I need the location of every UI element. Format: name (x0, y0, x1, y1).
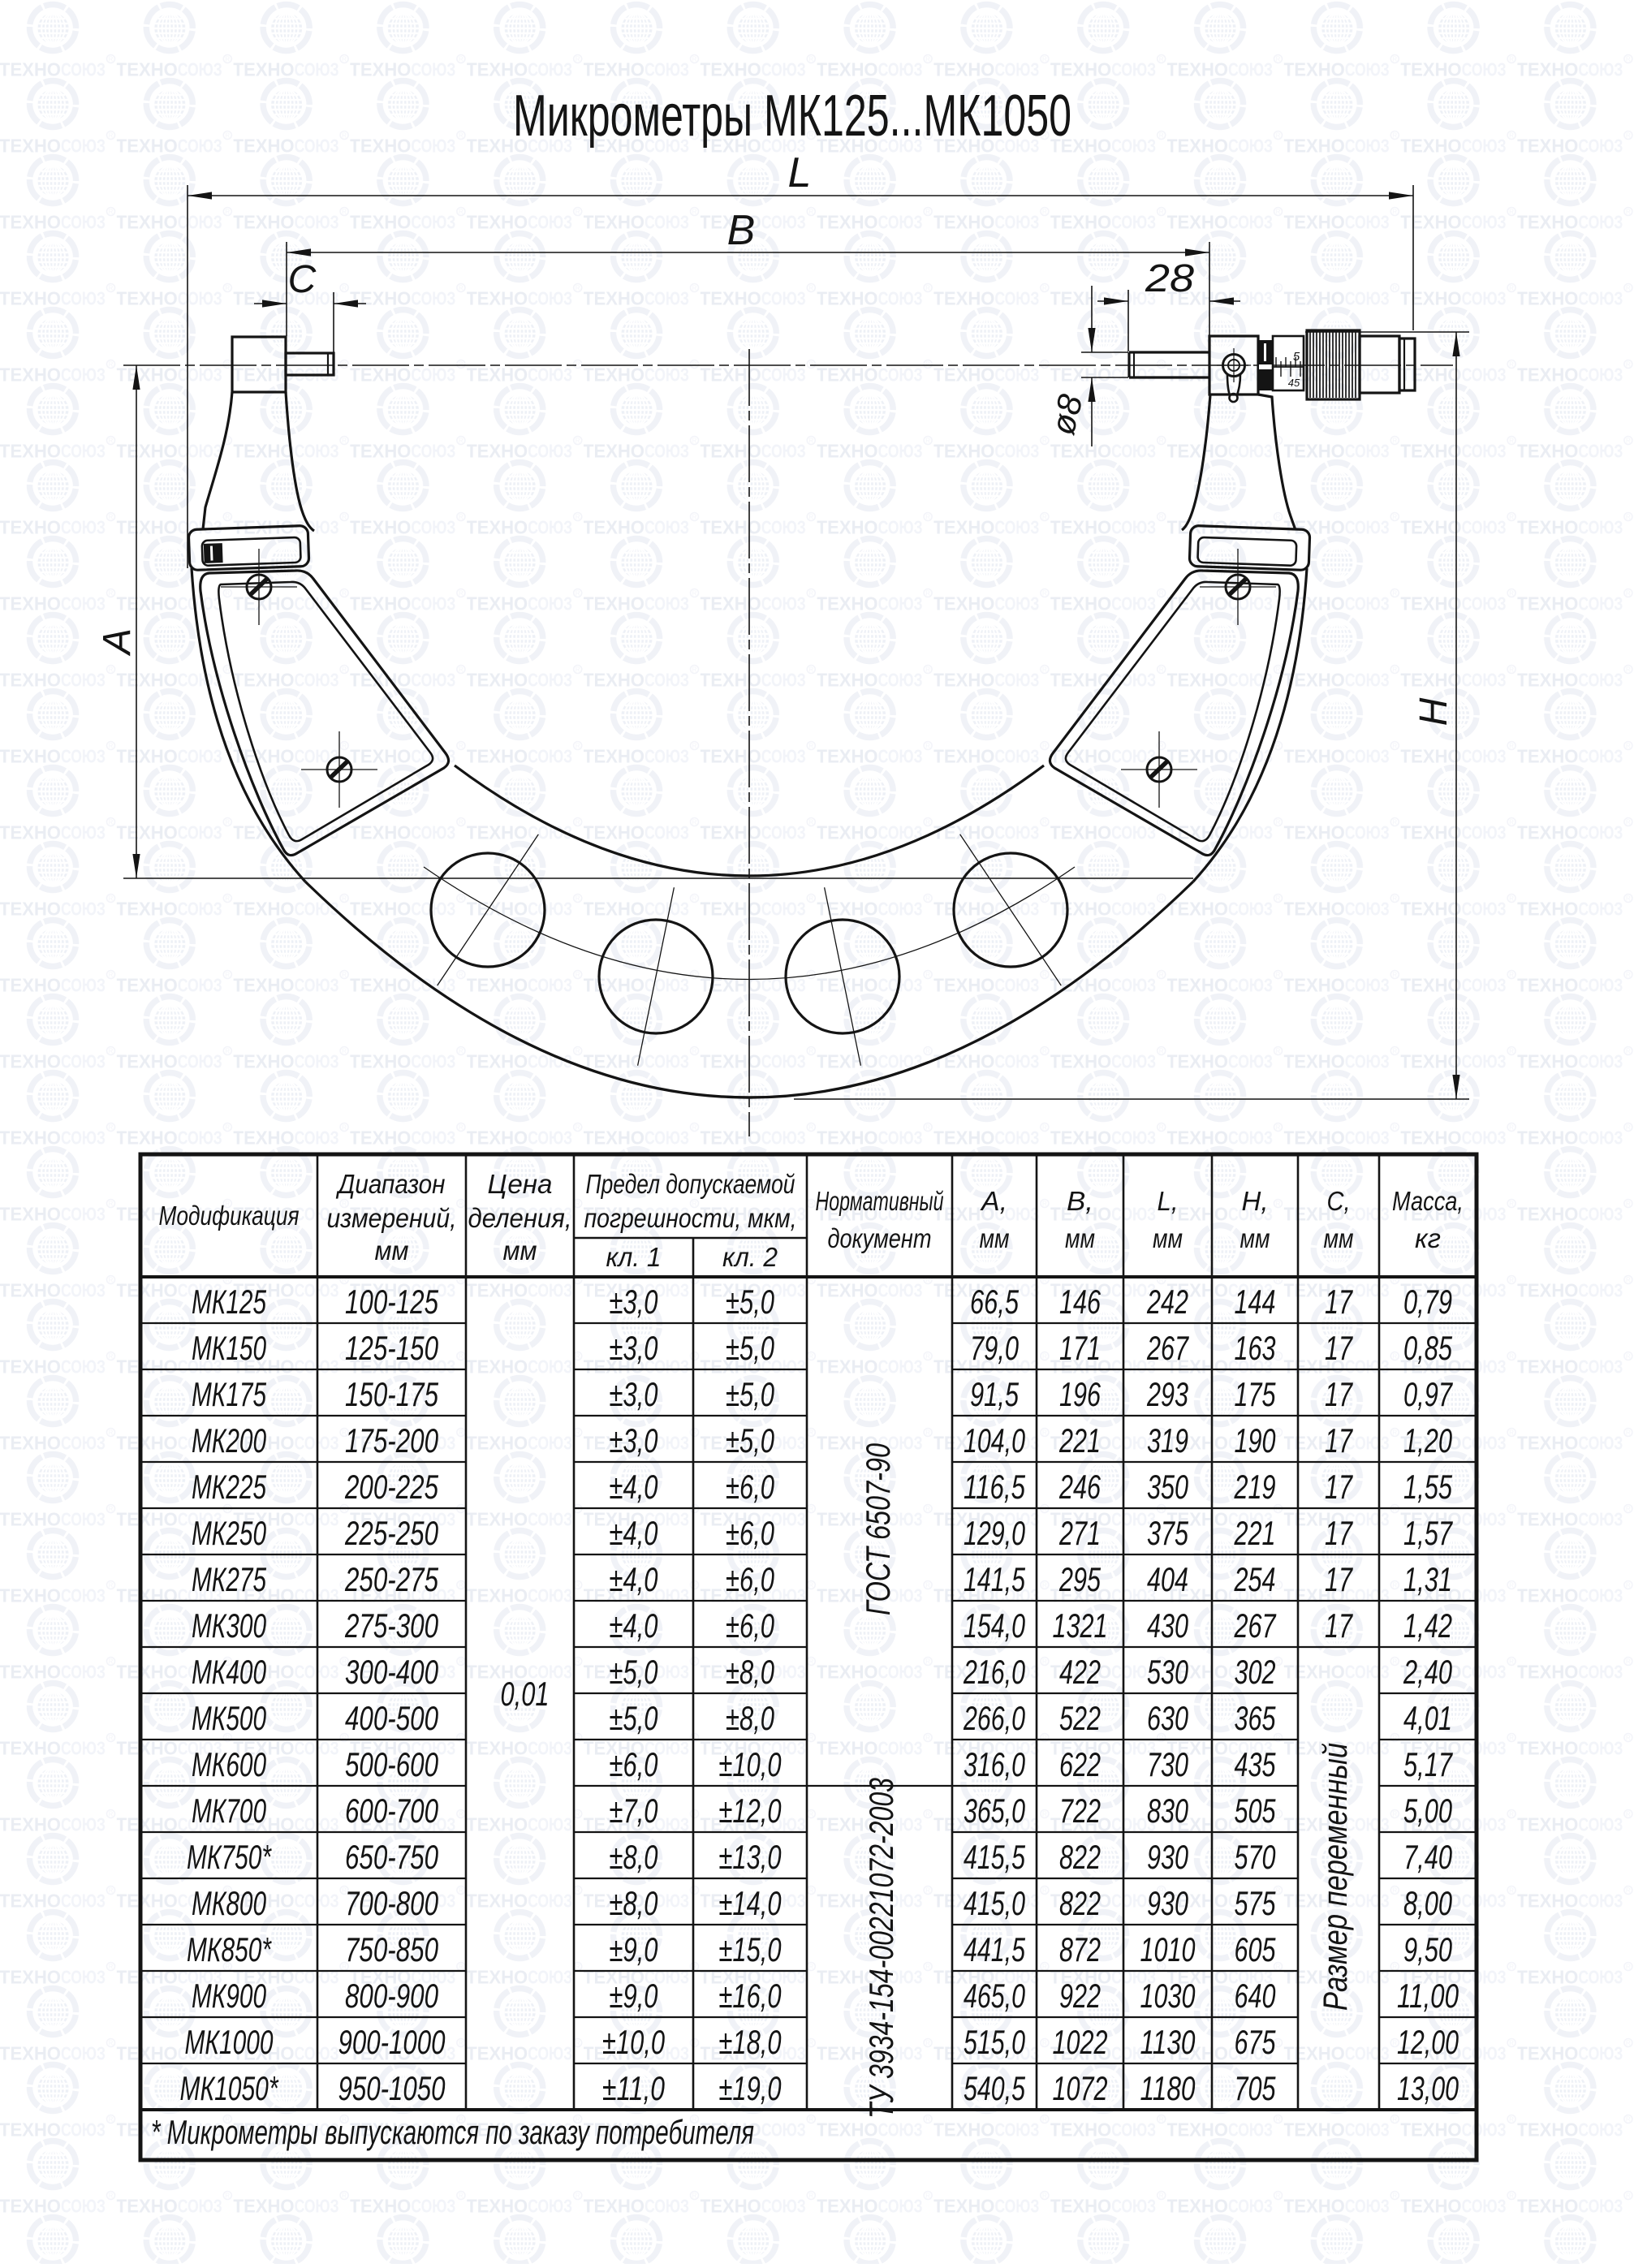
svg-text:±18,0: ±18,0 (719, 2023, 782, 2061)
svg-text:375: 375 (1147, 1514, 1188, 1552)
svg-text:МК600: МК600 (192, 1745, 266, 1783)
svg-text:350: 350 (1147, 1468, 1188, 1506)
svg-text:144: 144 (1235, 1283, 1276, 1321)
svg-text:МК275: МК275 (192, 1560, 266, 1598)
svg-text:В: В (727, 207, 756, 254)
svg-text:±9,0: ±9,0 (610, 1977, 658, 2015)
svg-text:266,0: 266,0 (963, 1699, 1025, 1737)
svg-text:125-150: 125-150 (345, 1329, 438, 1367)
svg-text:погрешности, мкм,: погрешности, мкм, (584, 1204, 797, 1234)
svg-text:600-700: 600-700 (345, 1792, 438, 1830)
svg-text:±6,0: ±6,0 (726, 1468, 774, 1506)
svg-text:МК250: МК250 (192, 1514, 266, 1552)
svg-text:822: 822 (1059, 1838, 1101, 1876)
svg-text:250-275: 250-275 (344, 1560, 438, 1598)
svg-text:1180: 1180 (1140, 2069, 1196, 2107)
svg-text:415,5: 415,5 (964, 1838, 1025, 1876)
svg-text:400-500: 400-500 (345, 1699, 438, 1737)
svg-text:141,5: 141,5 (964, 1560, 1025, 1598)
svg-text:146: 146 (1059, 1283, 1101, 1321)
svg-text:документ: документ (828, 1224, 932, 1254)
svg-text:872: 872 (1059, 1930, 1101, 1968)
svg-text:0,01: 0,01 (501, 1675, 550, 1713)
svg-text:1030: 1030 (1140, 1977, 1196, 2015)
svg-text:0,97: 0,97 (1403, 1375, 1453, 1413)
svg-text:±8,0: ±8,0 (726, 1653, 774, 1691)
svg-text:365,0: 365,0 (964, 1792, 1025, 1830)
svg-text:13,00: 13,00 (1397, 2069, 1459, 2107)
svg-text:±5,0: ±5,0 (610, 1699, 658, 1737)
svg-text:116,5: 116,5 (964, 1468, 1025, 1506)
svg-text:Размер переменный: Размер переменный (1316, 1743, 1354, 2011)
svg-text:мм: мм (1240, 1224, 1270, 1254)
svg-text:МК225: МК225 (192, 1468, 266, 1506)
svg-text:216,0: 216,0 (963, 1653, 1025, 1691)
svg-text:1,20: 1,20 (1403, 1421, 1452, 1460)
svg-text:±5,0: ±5,0 (610, 1653, 658, 1691)
svg-text:465,0: 465,0 (964, 1977, 1025, 2015)
svg-text:246: 246 (1058, 1468, 1101, 1506)
svg-text:ТУ 3934-154-00221072-2003: ТУ 3934-154-00221072-2003 (862, 1778, 900, 2119)
svg-text:±14,0: ±14,0 (719, 1884, 782, 1922)
svg-text:9,50: 9,50 (1403, 1930, 1452, 1968)
svg-text:219: 219 (1234, 1468, 1276, 1506)
svg-text:Микрометры МК125...МК1050: Микрометры МК125...МК1050 (513, 84, 1071, 149)
svg-text:кл. 2: кл. 2 (722, 1243, 778, 1273)
svg-text:±16,0: ±16,0 (719, 1977, 782, 2015)
svg-text:630: 630 (1147, 1699, 1188, 1737)
svg-text:316,0: 316,0 (964, 1745, 1025, 1783)
svg-text:8,00: 8,00 (1403, 1884, 1452, 1922)
svg-text:515,0: 515,0 (964, 2023, 1025, 2061)
svg-text:мм: мм (1065, 1224, 1095, 1254)
svg-text:722: 722 (1059, 1792, 1101, 1830)
svg-text:±4,0: ±4,0 (610, 1606, 658, 1645)
svg-text:196: 196 (1059, 1375, 1101, 1413)
svg-text:930: 930 (1147, 1838, 1188, 1876)
svg-text:675: 675 (1235, 2023, 1276, 2061)
svg-text:МК850*: МК850* (187, 1930, 272, 1968)
svg-text:17: 17 (1325, 1375, 1353, 1413)
svg-text:66,5: 66,5 (970, 1283, 1019, 1321)
svg-text:МК150: МК150 (192, 1329, 266, 1367)
svg-text:МК125: МК125 (192, 1283, 266, 1321)
svg-text:221: 221 (1058, 1421, 1101, 1460)
svg-text:±6,0: ±6,0 (610, 1745, 658, 1783)
svg-text:МК300: МК300 (192, 1606, 266, 1645)
svg-text:254: 254 (1234, 1560, 1276, 1598)
svg-text:В,: В, (1067, 1187, 1093, 1217)
svg-text:±4,0: ±4,0 (610, 1468, 658, 1506)
svg-text:302: 302 (1235, 1653, 1276, 1691)
svg-text:С: С (288, 258, 317, 301)
svg-text:12,00: 12,00 (1397, 2023, 1459, 2061)
svg-text:17: 17 (1325, 1421, 1353, 1460)
svg-text:7,40: 7,40 (1403, 1838, 1452, 1876)
svg-text:730: 730 (1147, 1745, 1188, 1783)
svg-text:441,5: 441,5 (964, 1930, 1025, 1968)
svg-text:измерений,: измерений, (327, 1204, 457, 1234)
svg-text:300-400: 300-400 (345, 1653, 438, 1691)
svg-text:±3,0: ±3,0 (610, 1329, 658, 1367)
svg-text:430: 430 (1147, 1606, 1188, 1645)
svg-text:МК800: МК800 (192, 1884, 266, 1922)
svg-text:570: 570 (1235, 1838, 1276, 1876)
svg-text:Цена: Цена (488, 1170, 553, 1200)
svg-text:5: 5 (1293, 350, 1300, 364)
svg-text:271: 271 (1058, 1514, 1101, 1552)
svg-text:±8,0: ±8,0 (610, 1838, 658, 1876)
svg-text:мм: мм (1153, 1224, 1183, 1254)
svg-text:900-1000: 900-1000 (338, 2023, 446, 2061)
svg-text:0,79: 0,79 (1403, 1283, 1452, 1321)
svg-text:МК500: МК500 (192, 1699, 266, 1737)
svg-text:415,0: 415,0 (964, 1884, 1025, 1922)
svg-text:154,0: 154,0 (964, 1606, 1025, 1645)
svg-text:1130: 1130 (1140, 2023, 1196, 2061)
svg-text:±10,0: ±10,0 (719, 1745, 782, 1783)
svg-text:Н: Н (1412, 697, 1455, 726)
svg-text:267: 267 (1146, 1329, 1189, 1367)
svg-text:мм: мм (1324, 1224, 1354, 1254)
svg-text:±5,0: ±5,0 (726, 1329, 774, 1367)
svg-text:МК200: МК200 (192, 1421, 266, 1460)
svg-text:мм: мм (375, 1236, 409, 1266)
svg-text:±5,0: ±5,0 (726, 1375, 774, 1413)
svg-text:±6,0: ±6,0 (726, 1560, 774, 1598)
svg-text:28: 28 (1145, 257, 1194, 300)
svg-text:±8,0: ±8,0 (726, 1699, 774, 1737)
svg-text:267: 267 (1234, 1606, 1277, 1645)
svg-text:17: 17 (1325, 1468, 1353, 1506)
svg-text:650-750: 650-750 (345, 1838, 438, 1876)
svg-text:±15,0: ±15,0 (719, 1930, 782, 1968)
svg-text:640: 640 (1235, 1977, 1276, 2015)
svg-text:530: 530 (1147, 1653, 1188, 1691)
svg-text:±10,0: ±10,0 (602, 2023, 665, 2061)
svg-text:1010: 1010 (1140, 1930, 1196, 1968)
svg-text:175: 175 (1235, 1375, 1276, 1413)
svg-text:700-800: 700-800 (345, 1884, 438, 1922)
svg-text:129,0: 129,0 (964, 1514, 1025, 1552)
svg-text:190: 190 (1235, 1421, 1276, 1460)
svg-text:0,85: 0,85 (1403, 1329, 1452, 1367)
svg-text:2,40: 2,40 (1403, 1653, 1452, 1691)
svg-text:1022: 1022 (1053, 2023, 1108, 2061)
svg-text:1,55: 1,55 (1403, 1468, 1452, 1506)
svg-text:L,: L, (1158, 1187, 1179, 1217)
svg-text:200-225: 200-225 (344, 1468, 438, 1506)
svg-text:±5,0: ±5,0 (726, 1283, 774, 1321)
svg-text:±6,0: ±6,0 (726, 1606, 774, 1645)
svg-text:11,00: 11,00 (1397, 1977, 1459, 2015)
svg-text:ГОСТ 6507-90: ГОСТ 6507-90 (859, 1443, 897, 1615)
svg-text:422: 422 (1059, 1653, 1101, 1691)
svg-text:Модификация: Модификация (159, 1201, 300, 1231)
svg-text:750-850: 750-850 (345, 1930, 438, 1968)
svg-text:Н,: Н, (1242, 1187, 1269, 1217)
svg-text:17: 17 (1325, 1329, 1353, 1367)
svg-text:деления,: деления, (468, 1204, 572, 1234)
svg-text:±8,0: ±8,0 (610, 1884, 658, 1922)
svg-text:±19,0: ±19,0 (719, 2069, 782, 2107)
svg-text:365: 365 (1235, 1699, 1276, 1737)
svg-text:Масса,: Масса, (1392, 1187, 1464, 1217)
svg-text:17: 17 (1325, 1606, 1353, 1645)
svg-text:91,5: 91,5 (970, 1375, 1019, 1413)
svg-text:171: 171 (1059, 1329, 1101, 1367)
svg-text:А,: А, (980, 1187, 1007, 1217)
svg-text:922: 922 (1059, 1977, 1101, 2015)
svg-text:МК1050*: МК1050* (180, 2069, 279, 2107)
svg-text:100-125: 100-125 (345, 1283, 438, 1321)
svg-text:622: 622 (1059, 1745, 1101, 1783)
svg-text:293: 293 (1146, 1375, 1188, 1413)
svg-text:175-200: 175-200 (345, 1421, 438, 1460)
svg-text:45: 45 (1288, 377, 1300, 389)
svg-text:930: 930 (1147, 1884, 1188, 1922)
svg-text:225-250: 225-250 (344, 1514, 438, 1552)
svg-text:Диапазон: Диапазон (335, 1170, 446, 1200)
svg-text:275-300: 275-300 (344, 1606, 438, 1645)
svg-text:17: 17 (1325, 1560, 1353, 1598)
svg-text:МК400: МК400 (192, 1653, 266, 1691)
svg-text:605: 605 (1235, 1930, 1276, 1968)
svg-text:мм: мм (980, 1224, 1010, 1254)
svg-text:±4,0: ±4,0 (610, 1560, 658, 1598)
svg-text:505: 505 (1235, 1792, 1276, 1830)
svg-text:575: 575 (1235, 1884, 1276, 1922)
svg-text:540,5: 540,5 (964, 2069, 1025, 2107)
svg-text:5,00: 5,00 (1403, 1792, 1452, 1830)
svg-text:±3,0: ±3,0 (610, 1375, 658, 1413)
svg-text:мм: мм (503, 1236, 537, 1266)
svg-text:500-600: 500-600 (345, 1745, 438, 1783)
svg-text:221: 221 (1234, 1514, 1276, 1552)
svg-text:522: 522 (1059, 1699, 1101, 1737)
svg-text:830: 830 (1147, 1792, 1188, 1830)
svg-text:17: 17 (1325, 1283, 1353, 1321)
svg-text:5,17: 5,17 (1403, 1745, 1453, 1783)
svg-text:L: L (788, 149, 812, 196)
svg-text:404: 404 (1147, 1560, 1188, 1598)
svg-text:±6,0: ±6,0 (726, 1514, 774, 1552)
svg-text:242: 242 (1146, 1283, 1188, 1321)
svg-text:319: 319 (1147, 1421, 1188, 1460)
svg-text:±12,0: ±12,0 (719, 1792, 782, 1830)
svg-text:±3,0: ±3,0 (610, 1283, 658, 1321)
svg-text:±5,0: ±5,0 (726, 1421, 774, 1460)
svg-text:±11,0: ±11,0 (602, 2069, 665, 2107)
svg-text:435: 435 (1235, 1745, 1276, 1783)
svg-text:1,57: 1,57 (1403, 1514, 1453, 1552)
svg-text:1,42: 1,42 (1403, 1606, 1452, 1645)
svg-text:150-175: 150-175 (345, 1375, 438, 1413)
svg-text:МК750*: МК750* (187, 1838, 272, 1876)
svg-text:МК175: МК175 (192, 1375, 266, 1413)
svg-text:±4,0: ±4,0 (610, 1514, 658, 1552)
svg-text:МК700: МК700 (192, 1792, 266, 1830)
svg-text:±3,0: ±3,0 (610, 1421, 658, 1460)
svg-text:822: 822 (1059, 1884, 1101, 1922)
svg-text:17: 17 (1325, 1514, 1353, 1552)
svg-text:295: 295 (1058, 1560, 1101, 1598)
svg-text:±13,0: ±13,0 (719, 1838, 782, 1876)
svg-text:800-900: 800-900 (345, 1977, 438, 2015)
svg-text:±9,0: ±9,0 (610, 1930, 658, 1968)
svg-text:кл. 1: кл. 1 (606, 1243, 662, 1273)
svg-text:1072: 1072 (1053, 2069, 1108, 2107)
svg-text:А: А (96, 628, 139, 657)
svg-text:950-1050: 950-1050 (338, 2069, 446, 2107)
svg-text:79,0: 79,0 (970, 1329, 1019, 1367)
svg-text:Нормативный: Нормативный (816, 1187, 944, 1217)
svg-text:1,31: 1,31 (1403, 1560, 1452, 1598)
svg-text:4,01: 4,01 (1403, 1699, 1452, 1737)
svg-text:104,0: 104,0 (964, 1421, 1025, 1460)
svg-text:С,: С, (1327, 1187, 1351, 1217)
svg-text:МК1000: МК1000 (185, 2023, 274, 2061)
svg-text:МК900: МК900 (192, 1977, 266, 2015)
svg-text:* Микрометры выпускаются по за: * Микрометры выпускаются по заказу потре… (151, 2113, 754, 2151)
svg-text:705: 705 (1235, 2069, 1276, 2107)
svg-text:1321: 1321 (1053, 1606, 1108, 1645)
svg-text:163: 163 (1235, 1329, 1276, 1367)
svg-text:кг: кг (1415, 1224, 1441, 1254)
svg-text:±7,0: ±7,0 (610, 1792, 658, 1830)
svg-text:Предел допускаемой: Предел допускаемой (586, 1170, 795, 1200)
